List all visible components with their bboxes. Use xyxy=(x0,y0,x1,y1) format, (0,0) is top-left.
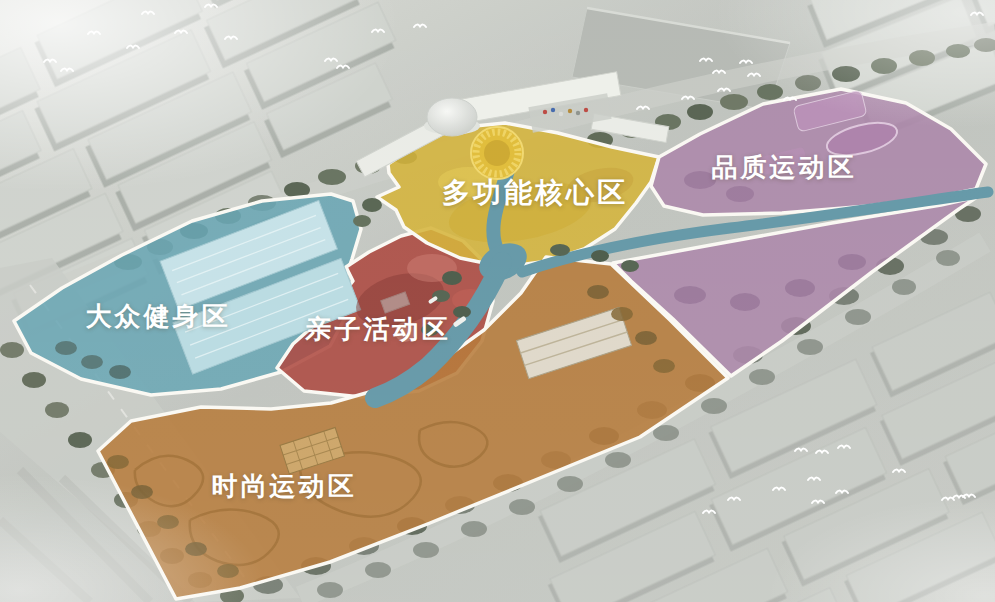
dome-building xyxy=(427,98,477,136)
stadium-building xyxy=(471,127,523,179)
zone-public-fitness-label: 大众健身区 xyxy=(86,301,231,331)
zone-quality-sports-label: 品质运动区 xyxy=(712,152,857,182)
zone-fashion-sports-label: 时尚运动区 xyxy=(212,471,357,501)
masterplan-canvas: 多功能核心区 品质运动区 大众健身区 亲子活动区 时尚运动区 xyxy=(0,0,995,602)
aerial-masterplan-rendering: 多功能核心区 品质运动区 大众健身区 亲子活动区 时尚运动区 xyxy=(0,0,995,602)
zone-multi-function-core-label: 多功能核心区 xyxy=(442,177,628,208)
zone-parent-child-label: 亲子活动区 xyxy=(305,314,451,344)
